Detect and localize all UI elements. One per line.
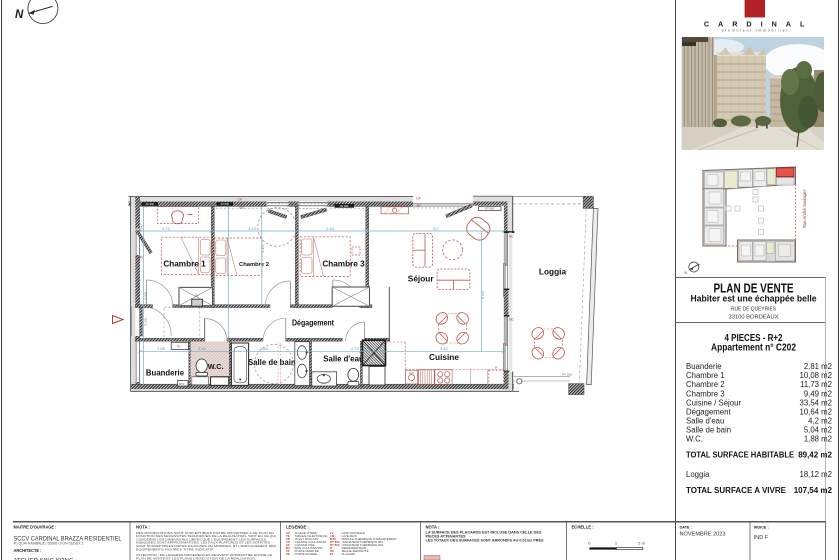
svg-text:2.: 2. [141, 226, 144, 230]
svg-text:RUE DE QUEYRIES: RUE DE QUEYRIES [731, 307, 776, 313]
svg-text:2.96: 2.96 [143, 291, 148, 300]
svg-text:LEGENDE :: LEGENDE : [286, 525, 309, 530]
svg-text:89,42 m2: 89,42 m2 [798, 451, 832, 460]
svg-text:MTA: MTA [179, 382, 185, 386]
svg-text:PLAN DE VENTE ET LES PLANS D'E: PLAN DE VENTE ET LES PLANS D'EXECUTION D… [136, 556, 256, 560]
svg-text:VR: VR [239, 206, 244, 210]
svg-text:NOTA :: NOTA : [426, 525, 440, 530]
svg-text:4.42: 4.42 [440, 346, 449, 351]
svg-text:AV 900: AV 900 [146, 202, 155, 206]
svg-text:Habiter est une échappée belle: Habiter est une échappée belle [691, 294, 817, 304]
svg-text:Buanderie: Buanderie [686, 362, 722, 371]
svg-text:33100 BORDEAUX: 33100 BORDEAUX [729, 315, 779, 321]
svg-text:AV 900: AV 900 [221, 202, 230, 206]
svg-text:2 m: 2 m [638, 540, 645, 545]
svg-text:Appartement n° C202: Appartement n° C202 [711, 342, 796, 354]
svg-text:promoteur immobilier: promoteur immobilier [722, 29, 790, 33]
svg-text:BC: BC [509, 318, 514, 322]
svg-text:Dégagement: Dégagement [686, 407, 731, 416]
svg-text:Séjour: Séjour [408, 273, 435, 283]
svg-text:Chambre 3: Chambre 3 [686, 389, 725, 398]
svg-text:33,54 m2: 33,54 m2 [799, 398, 832, 407]
svg-text:ARCHITECTE :: ARCHITECTE : [14, 548, 42, 553]
svg-text:1.98: 1.98 [157, 346, 166, 351]
svg-text:5,04 m2: 5,04 m2 [804, 425, 832, 434]
svg-text:5.7: 5.7 [433, 226, 439, 231]
svg-text:W.C.: W.C. [208, 362, 224, 371]
svg-text:Cuisine: Cuisine [429, 352, 459, 362]
svg-text:EQUIPEMENTS FIGURE A TITRE IND: EQUIPEMENTS FIGURE A TITRE INDICATIF. [136, 547, 214, 551]
svg-text:Chambre 1: Chambre 1 [686, 371, 725, 380]
svg-text:Rue André Soulages: Rue André Soulages [802, 190, 807, 228]
svg-text:6.83: 6.83 [480, 290, 485, 299]
svg-text:LES TOTAUX DES SURFACES SONT A: LES TOTAUX DES SURFACES SONT ARRONDIS AU… [426, 538, 545, 543]
svg-text:Chambre 2: Chambre 2 [686, 380, 725, 389]
svg-text:Dégagement: Dégagement [292, 318, 334, 327]
svg-text:2.79: 2.79 [351, 346, 360, 351]
svg-text:Salle d'eau: Salle d'eau [323, 354, 364, 363]
svg-text:CF: CF [238, 198, 244, 202]
svg-text:PL: PL [196, 294, 200, 298]
svg-text:11,73 m2: 11,73 m2 [800, 380, 832, 389]
svg-text:PE: PE [286, 552, 290, 556]
svg-text:CF: CF [416, 197, 422, 201]
svg-text:2,81 m2: 2,81 m2 [804, 362, 832, 371]
svg-text:2.34: 2.34 [326, 226, 335, 231]
svg-text:Loggia: Loggia [686, 470, 710, 479]
svg-text:CARDINAL: CARDINAL [704, 20, 814, 29]
svg-text:Chambre 1: Chambre 1 [163, 259, 206, 268]
svg-text:N: N [15, 9, 24, 21]
svg-text:2.44: 2.44 [198, 346, 207, 351]
svg-text:RT 800: RT 800 [485, 207, 495, 211]
svg-text:ECHELLE :: ECHELLE : [572, 525, 594, 530]
svg-text:TE: TE [177, 345, 181, 349]
svg-text:W.C.: W.C. [686, 434, 703, 443]
svg-text:PF: PF [470, 203, 474, 207]
svg-text:1.15: 1.15 [260, 244, 265, 253]
svg-text:BC: BC [509, 235, 514, 239]
svg-text:Chambre 2: Chambre 2 [239, 262, 269, 268]
svg-text:3.13: 3.13 [248, 226, 257, 231]
svg-text:: PORTE PALIERE: : PORTE PALIERE [293, 552, 317, 556]
svg-text:Chambre 3: Chambre 3 [322, 259, 365, 268]
svg-text:PV 150: PV 150 [562, 373, 572, 377]
svg-text:DATE :: DATE : [680, 525, 692, 529]
svg-text:18,12 m2: 18,12 m2 [799, 470, 832, 479]
svg-text:Loggia: Loggia [539, 266, 567, 276]
svg-text:9,49 m2: 9,49 m2 [804, 389, 832, 398]
svg-text:107,54 m2: 107,54 m2 [794, 486, 833, 495]
svg-text:Salle de bain: Salle de bain [248, 358, 296, 367]
svg-text:: PLACARD: : PLACARD [340, 552, 355, 556]
svg-text:AV 900: AV 900 [340, 204, 349, 208]
svg-text:4,2 m2: 4,2 m2 [808, 416, 832, 425]
svg-text:MAITRE D'OUVRAGE :: MAITRE D'OUVRAGE : [14, 525, 57, 530]
svg-text:INDICE :: INDICE : [754, 525, 769, 529]
svg-text:Salle d'eau: Salle d'eau [686, 416, 724, 425]
svg-text:NOVEMBRE 2023: NOVEMBRE 2023 [680, 532, 726, 538]
svg-text:Buanderie: Buanderie [146, 369, 185, 378]
svg-text:2.80: 2.80 [260, 346, 269, 351]
svg-text:10,08 m2: 10,08 m2 [799, 371, 832, 380]
svg-text:10,64 m2: 10,64 m2 [799, 407, 832, 416]
svg-text:TOTAL SURFACE HABITABLE: TOTAL SURFACE HABITABLE [686, 451, 795, 460]
svg-text:40 QUAI RAMBAUD, 69266 LYON CE: 40 QUAI RAMBAUD, 69266 LYON CEDEX 2 [14, 541, 84, 545]
svg-text:Cuisine / Séjour: Cuisine / Séjour [686, 398, 741, 407]
svg-text:AV: AV [417, 204, 422, 208]
svg-text:1,88 m2: 1,88 m2 [804, 434, 832, 443]
svg-text:Salle de bain: Salle de bain [686, 425, 731, 434]
svg-text:2.72: 2.72 [162, 226, 171, 231]
svg-text:TOTAL SURFACE A VIVRE: TOTAL SURFACE A VIVRE [686, 486, 787, 495]
svg-text:PL: PL [330, 552, 334, 556]
svg-text:7.20: 7.20 [143, 317, 148, 326]
svg-text:IND F: IND F [754, 535, 769, 541]
svg-text:NOTA :: NOTA : [136, 525, 150, 530]
